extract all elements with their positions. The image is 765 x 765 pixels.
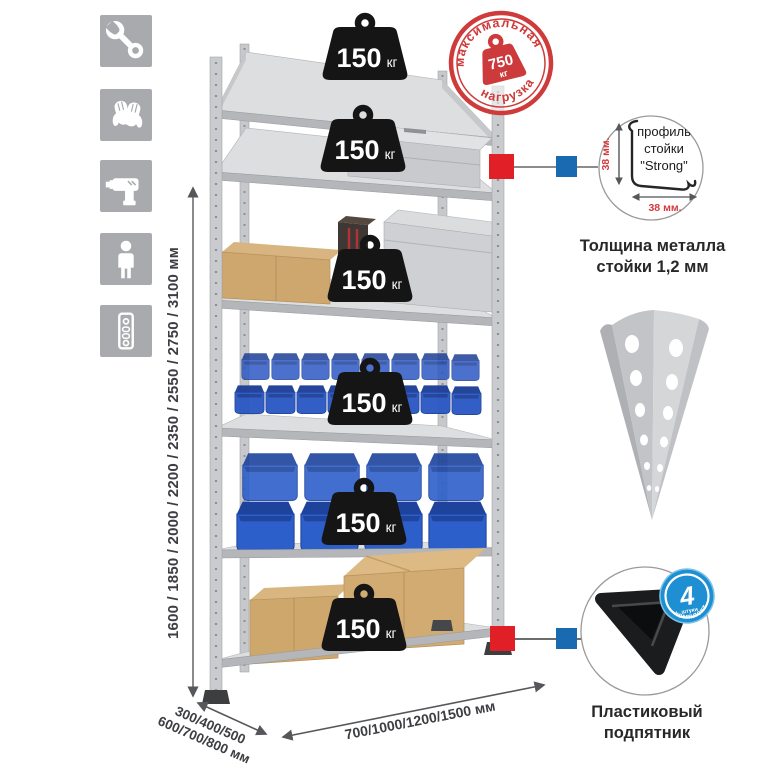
foot-caption: Пластиковый подпятник bbox=[567, 702, 727, 744]
person-icon bbox=[100, 233, 152, 285]
profile-callout-connector bbox=[489, 154, 598, 179]
load-value: 150 bbox=[334, 135, 379, 165]
drill-icon bbox=[100, 160, 152, 212]
load-value: 150 bbox=[335, 508, 380, 538]
shelf5-load-badge: 150 кг bbox=[314, 477, 414, 551]
load-value: 150 bbox=[335, 614, 380, 644]
product-infographic: максимальная нагрузка 750 кг 38 мм. 38 м… bbox=[0, 0, 765, 765]
profile-label-1: профиль bbox=[637, 124, 691, 139]
foot-caption-line1: Пластиковый bbox=[567, 702, 727, 723]
load-unit: кг bbox=[392, 400, 403, 415]
load-unit: кг bbox=[385, 147, 396, 162]
plastic-foot-back-right bbox=[431, 620, 453, 631]
profile-horizontal-dim: 38 мм. bbox=[648, 202, 681, 214]
profile-vertical-dim: 38 мм. bbox=[600, 137, 612, 170]
profile-detail-circle: 38 мм. 38 мм. профиль стойки "Strong" bbox=[599, 116, 703, 220]
rack-post-icon bbox=[100, 305, 152, 357]
shelf6-load-badge: 150 кг bbox=[314, 583, 414, 657]
shelf4-load-badge: 150 кг bbox=[320, 357, 420, 431]
foot-callout-connector bbox=[490, 626, 584, 651]
gloves-icon bbox=[100, 89, 152, 141]
load-unit: кг bbox=[386, 626, 397, 641]
profile-label-3: "Strong" bbox=[640, 158, 688, 173]
blue-marker-bottom bbox=[556, 628, 577, 649]
foot-caption-line2: подпятник bbox=[567, 723, 727, 744]
load-unit: кг bbox=[392, 277, 403, 292]
height-dimension-label: 1600 / 1850 / 2000 / 2200 / 2350 / 2550 … bbox=[165, 188, 187, 698]
load-value: 150 bbox=[341, 265, 386, 295]
shelf1-load-badge: 150 кг bbox=[315, 12, 415, 86]
load-value: 150 bbox=[336, 43, 381, 73]
profile-caption-line2: стойки 1,2 мм bbox=[560, 257, 745, 278]
corner-post-image bbox=[600, 310, 709, 520]
red-marker-top bbox=[489, 154, 514, 179]
red-marker-bottom bbox=[490, 626, 515, 651]
load-unit: кг bbox=[387, 55, 398, 70]
load-value: 150 bbox=[341, 388, 386, 418]
plastic-foot-front-left bbox=[202, 690, 230, 704]
shelf2-load-badge: 150 кг bbox=[313, 104, 413, 178]
wrench-icon bbox=[100, 15, 152, 67]
profile-label-2: стойки bbox=[644, 141, 684, 156]
blue-marker-top bbox=[556, 156, 577, 177]
shelf3-load-badge: 150 кг bbox=[320, 234, 420, 308]
load-unit: кг bbox=[386, 520, 397, 535]
foot-detail-circle: 4 штуки в комплекте bbox=[581, 565, 718, 695]
profile-caption: Толщина металла стойки 1,2 мм bbox=[560, 236, 745, 278]
profile-caption-line1: Толщина металла bbox=[560, 236, 745, 257]
